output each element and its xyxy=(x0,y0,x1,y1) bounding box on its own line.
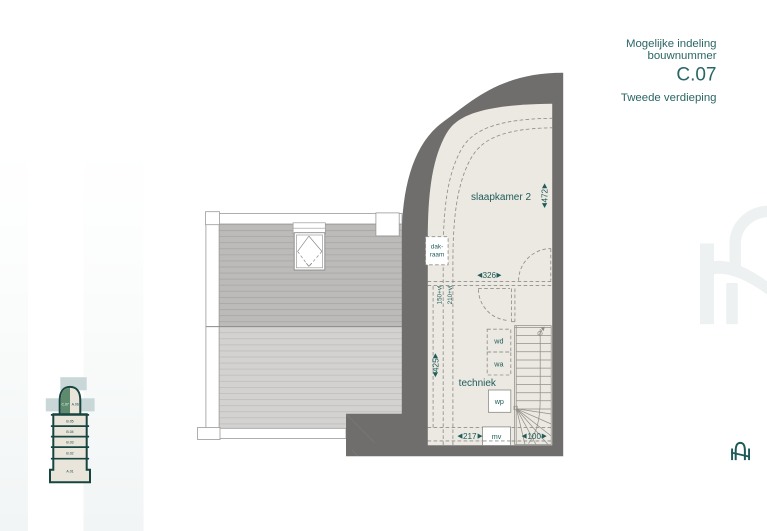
svg-text:326: 326 xyxy=(482,271,496,280)
svg-text:217: 217 xyxy=(463,432,477,441)
svg-text:slaapkamer 2: slaapkamer 2 xyxy=(471,192,531,203)
svg-text:472: 472 xyxy=(541,188,550,202)
svg-text:bouwnummer: bouwnummer xyxy=(647,50,716,62)
svg-text:100: 100 xyxy=(527,432,541,441)
svg-text:wd: wd xyxy=(493,337,503,346)
svg-text:C.07: C.07 xyxy=(61,402,68,406)
svg-text:150+vl: 150+vl xyxy=(437,286,444,305)
svg-text:A.06: A.06 xyxy=(72,402,79,406)
svg-text:wa: wa xyxy=(493,359,503,368)
svg-text:dak-: dak- xyxy=(431,243,443,250)
svg-text:B.05: B.05 xyxy=(66,419,73,423)
svg-text:B.03: B.03 xyxy=(66,440,73,444)
svg-text:210+vl: 210+vl xyxy=(447,286,454,305)
svg-text:C.07: C.07 xyxy=(676,65,716,86)
svg-text:B.04: B.04 xyxy=(66,430,73,434)
svg-text:techniek: techniek xyxy=(459,378,497,389)
svg-text:A.01: A.01 xyxy=(66,469,73,473)
svg-text:Tweede verdieping: Tweede verdieping xyxy=(621,92,717,104)
svg-text:wp: wp xyxy=(494,397,504,406)
svg-text:B.02: B.02 xyxy=(66,452,73,456)
svg-text:mv: mv xyxy=(492,432,502,441)
svg-text:raam: raam xyxy=(430,252,445,259)
svg-text:Mogelijke indeling: Mogelijke indeling xyxy=(626,38,717,50)
svg-text:425: 425 xyxy=(431,358,440,372)
